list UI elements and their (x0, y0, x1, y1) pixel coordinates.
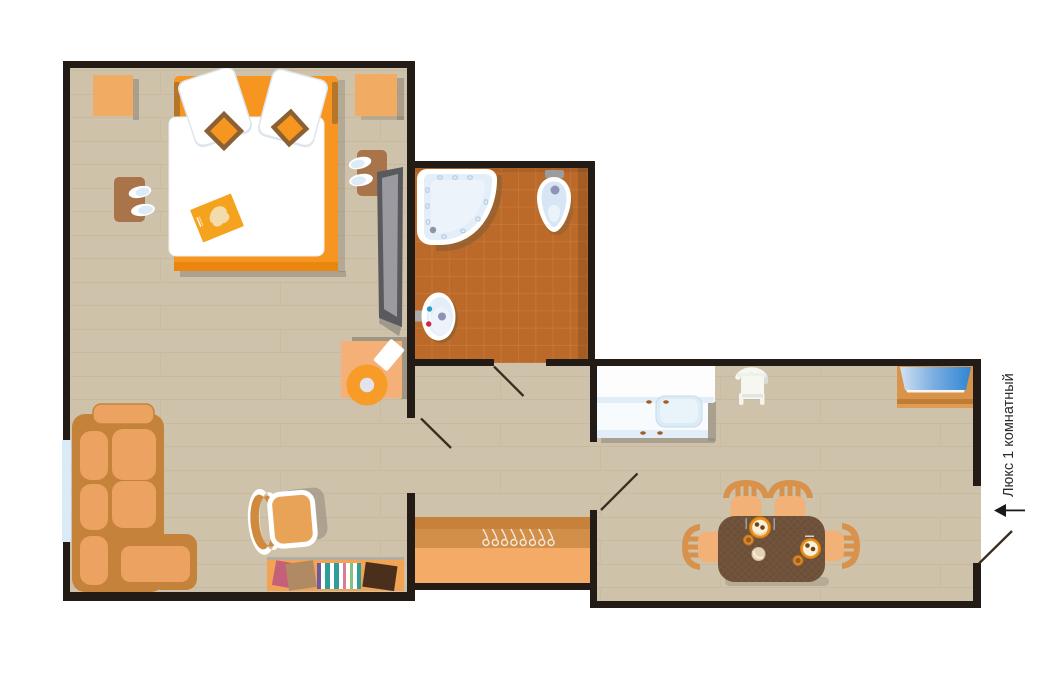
svg-text:Люкс 1 комнатный: Люкс 1 комнатный (1001, 373, 1017, 497)
